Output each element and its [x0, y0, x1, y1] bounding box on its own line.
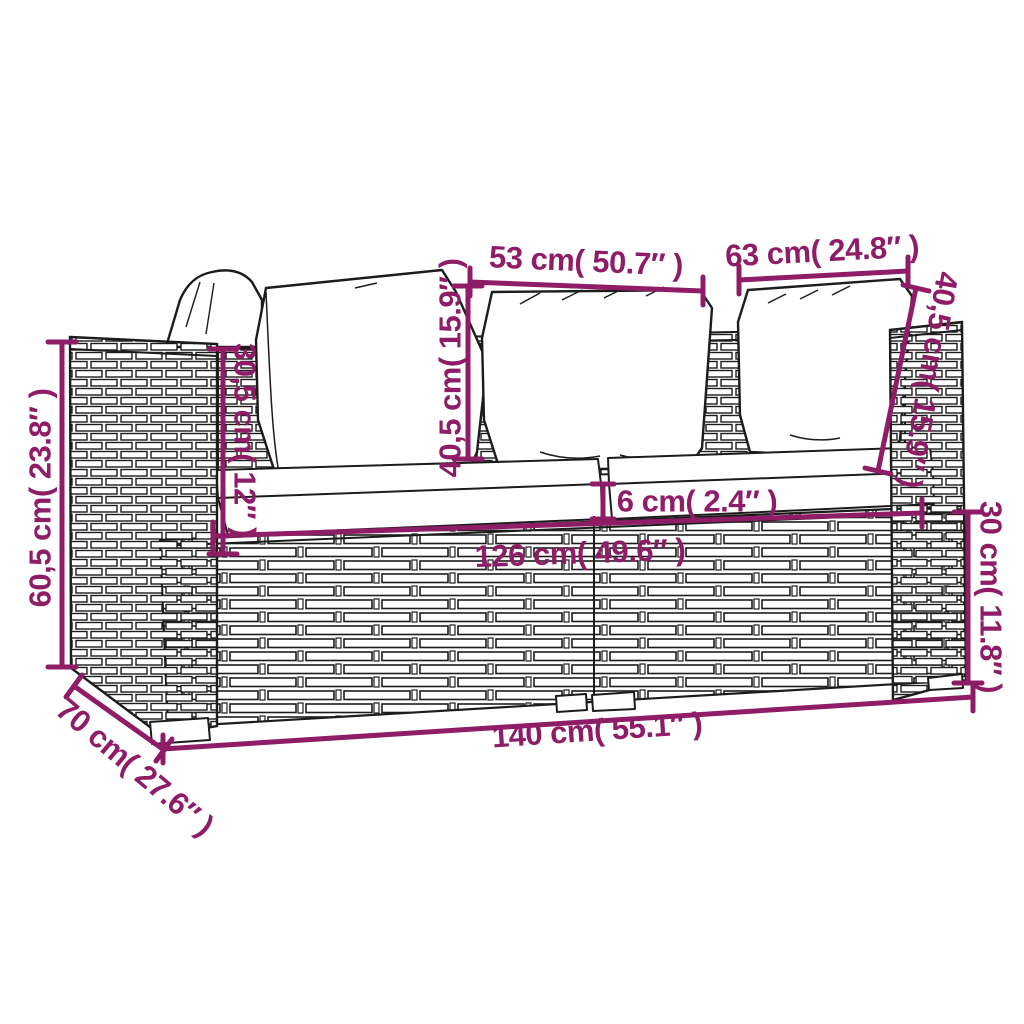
dim-label-armrest-to-seat-height: 30,5 cm( 12″ )	[230, 343, 261, 537]
left-armrest	[70, 337, 217, 736]
foot	[150, 718, 210, 744]
dim-label-seat-width: 126 cm( 49.6″ )	[474, 534, 686, 572]
corner-pillow	[166, 270, 262, 347]
dim-label-back-height-middle: 40,5 cm( 15.9″ )	[435, 259, 466, 478]
dim-label-total-height: 60,5 cm( 23.8″ )	[25, 389, 56, 608]
dimension-diagram: 53 cm( 50.7″ ) 63 cm( 24.8″ ) 40,5 cm( 1…	[0, 0, 1024, 1024]
foot	[592, 692, 635, 711]
sofa-line-art	[0, 0, 1024, 1024]
dim-label-base-height: 30 cm( 11.8″ )	[976, 501, 1007, 693]
middle-back-pillow	[482, 287, 712, 470]
dim-label-back-width-left: 53 cm( 50.7″ )	[488, 241, 683, 280]
dim-label-cushion-thickness: 6 cm( 2.4″ )	[617, 486, 777, 517]
foot	[556, 694, 587, 712]
